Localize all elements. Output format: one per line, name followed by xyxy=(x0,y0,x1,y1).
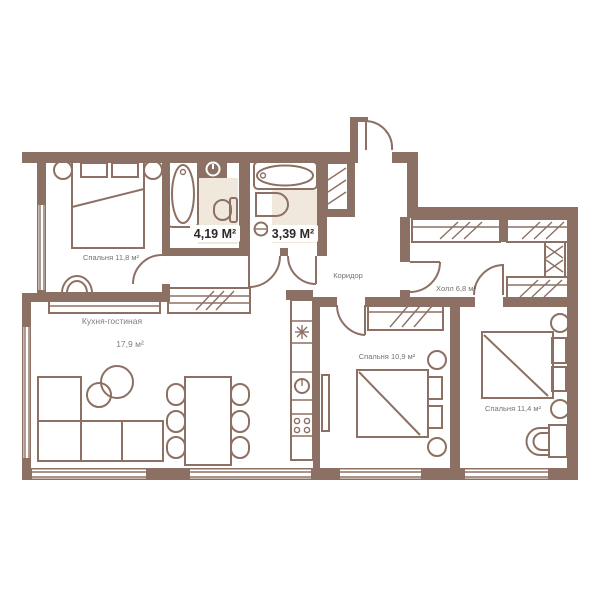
bed-icon xyxy=(72,160,144,248)
window-living-bottom-2 xyxy=(190,470,311,479)
chair-icon xyxy=(527,428,550,455)
walls xyxy=(22,117,578,480)
floor-plan: 4,19 М² 3,39 М² xyxy=(0,0,600,600)
wardrobe-hatch-icon xyxy=(368,303,443,330)
bathroom-1: 4,19 М² xyxy=(168,160,240,244)
sofa-icon xyxy=(38,377,163,461)
nightstand-icon xyxy=(428,351,446,369)
wardrobe-hatch-icon xyxy=(168,288,250,313)
snowflake-icon xyxy=(295,325,309,339)
nightstand-icon xyxy=(144,161,162,179)
coffee-table-icon xyxy=(101,366,133,398)
bathroom2-door-arc xyxy=(288,256,316,284)
vent-shaft-hatch-icon xyxy=(545,242,565,277)
nightstand-icon xyxy=(54,161,72,179)
living-room-area-label: 17,9 м² xyxy=(116,339,144,349)
nightstand-icon xyxy=(551,314,569,332)
bathroom1-area-label: 4,19 М² xyxy=(194,227,236,241)
bathroom2-area-label: 3,39 М² xyxy=(272,227,314,241)
bedroom3-door-arc xyxy=(474,264,503,295)
bedroom2-door-arc xyxy=(337,305,365,335)
vent-shaft-hatch-icon xyxy=(327,163,348,210)
bedroom2-label: Спальня 10,9 м² xyxy=(359,352,416,361)
bedroom1-label: Спальня 11,8 м² xyxy=(83,253,139,262)
window-bedroom1-left xyxy=(39,205,46,290)
bathroom1-door-arc xyxy=(249,256,280,287)
oven-dial-icon xyxy=(295,379,309,393)
toilet-icon xyxy=(254,223,268,236)
bathtub-icon xyxy=(168,160,198,227)
bathtub-icon xyxy=(254,162,317,189)
bedroom-1: Спальня 11,8 м² xyxy=(54,160,162,293)
hall-label: Холл 6,8 м² xyxy=(436,284,476,293)
radiator-icon xyxy=(322,375,329,431)
washing-machine-icon xyxy=(199,160,227,178)
wardrobe-hatch-icon xyxy=(507,219,571,242)
hall: Холл 6,8 м² xyxy=(412,219,571,300)
corridor-label: Коридор xyxy=(333,271,363,280)
bedroom3-label: Спальня 11,4 м² xyxy=(485,404,541,413)
bed-icon xyxy=(482,332,566,398)
bathroom2-area-badge: 3,39 М² xyxy=(268,225,318,242)
window-living-left xyxy=(24,327,31,458)
entry-door-arc xyxy=(366,120,392,150)
wardrobe-hatch-icon xyxy=(507,277,570,300)
living-room-label: Кухня-гостиная xyxy=(82,316,143,326)
bedroom-2: Спальня 10,9 м² xyxy=(322,303,446,456)
dining-table-icon xyxy=(167,377,249,465)
kitchen-counter xyxy=(291,300,313,460)
armchair-icon xyxy=(58,276,96,293)
living-room: Кухня-гостиная 17,9 м² xyxy=(38,300,313,465)
bathroom1-area-badge: 4,19 М² xyxy=(190,225,240,242)
bed-icon xyxy=(357,370,442,437)
window-living-bottom-1 xyxy=(32,470,146,479)
window-bedroom2-bottom xyxy=(340,470,421,479)
nightstand-icon xyxy=(551,400,569,418)
bedroom-3: Спальня 11,4 м² xyxy=(482,314,569,457)
desk-icon xyxy=(549,425,567,457)
window-bedroom3-bottom xyxy=(465,470,548,479)
bathroom-2: 3,39 М² xyxy=(254,162,318,243)
wardrobe-hatch-icon xyxy=(412,219,500,242)
cooktop-burners-icon xyxy=(294,418,309,432)
nightstand-icon xyxy=(428,438,446,456)
windows xyxy=(24,205,549,479)
